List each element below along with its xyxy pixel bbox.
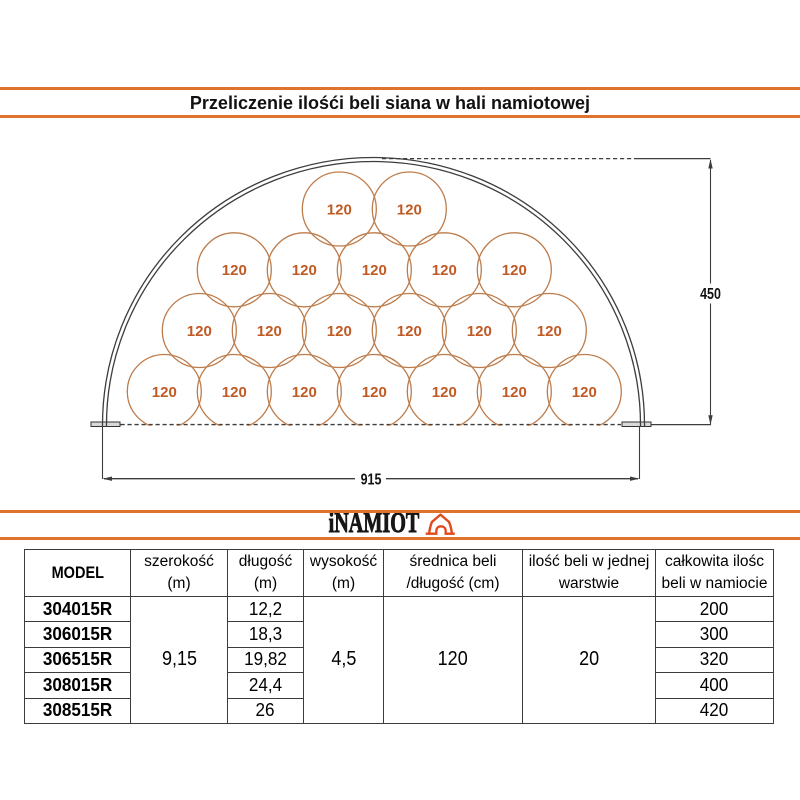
svg-text:450: 450 <box>700 286 721 304</box>
svg-text:120: 120 <box>502 384 527 401</box>
svg-text:120: 120 <box>292 384 317 401</box>
svg-text:120: 120 <box>432 262 457 279</box>
svg-text:120: 120 <box>327 201 352 218</box>
svg-text:120: 120 <box>292 262 317 279</box>
svg-text:120: 120 <box>572 384 597 401</box>
svg-text:120: 120 <box>362 384 387 401</box>
svg-text:120: 120 <box>467 323 492 340</box>
svg-text:120: 120 <box>362 262 387 279</box>
svg-text:120: 120 <box>397 323 422 340</box>
svg-text:120: 120 <box>537 323 562 340</box>
svg-text:120: 120 <box>432 384 457 401</box>
svg-text:120: 120 <box>257 323 282 340</box>
svg-text:120: 120 <box>327 323 352 340</box>
svg-text:915: 915 <box>361 471 382 489</box>
svg-text:120: 120 <box>222 262 247 279</box>
svg-text:120: 120 <box>187 323 212 340</box>
svg-text:120: 120 <box>397 201 422 218</box>
svg-text:120: 120 <box>222 384 247 401</box>
svg-text:120: 120 <box>502 262 527 279</box>
svg-text:120: 120 <box>152 384 177 401</box>
